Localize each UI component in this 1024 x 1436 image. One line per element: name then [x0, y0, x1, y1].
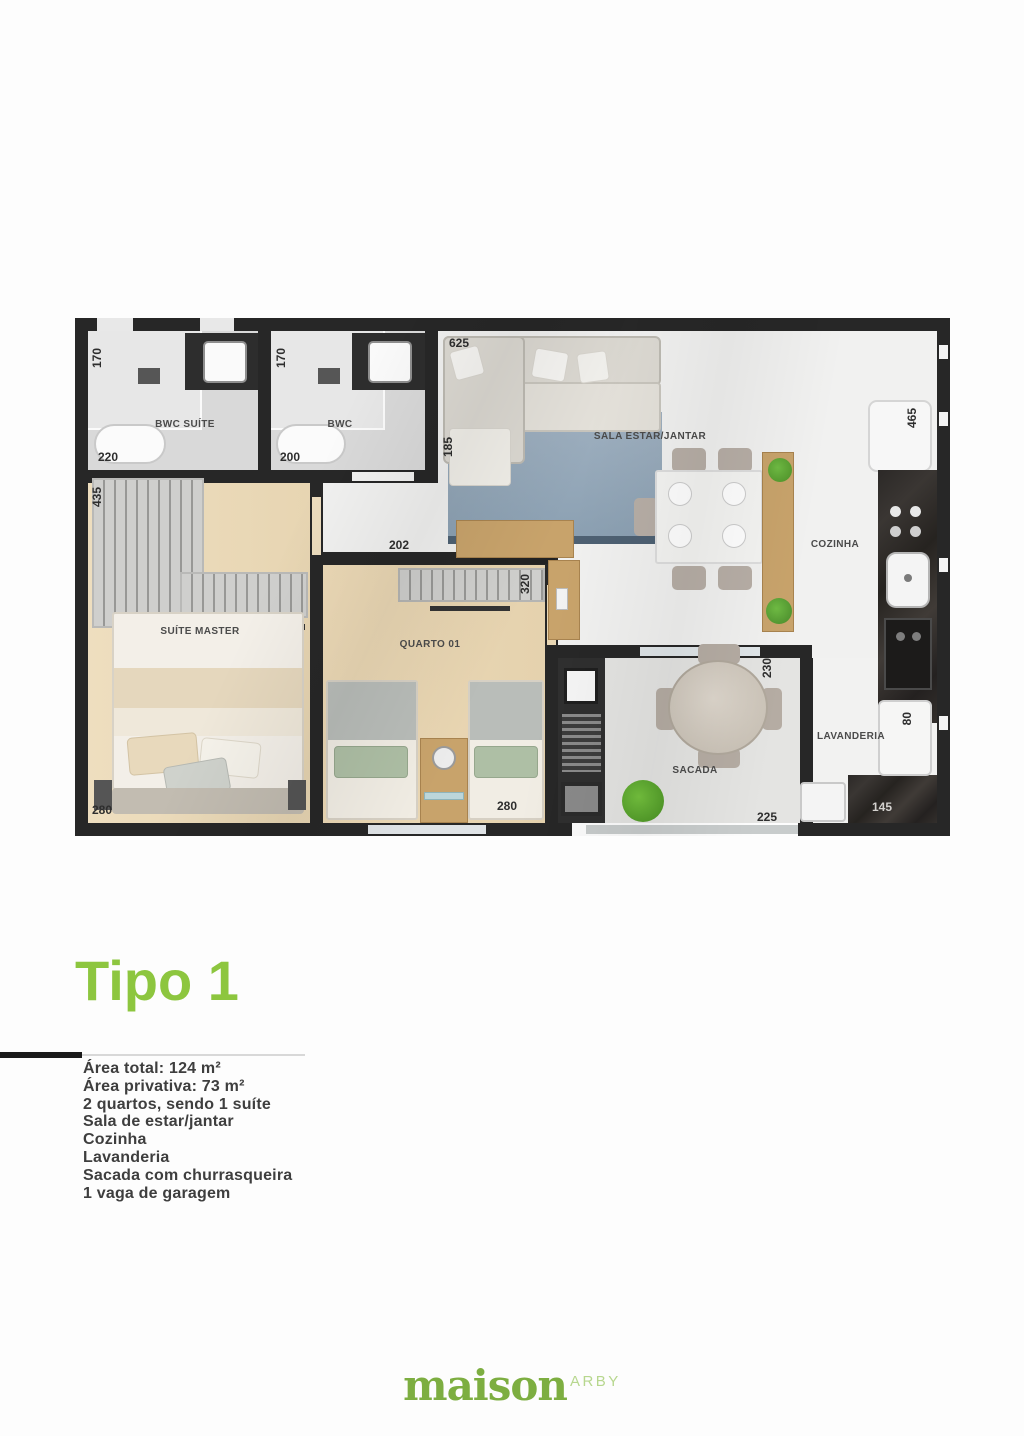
- dining-chair-top-2: [718, 448, 752, 472]
- door-suite: [312, 497, 321, 555]
- label-bwc-suite: BWC SUÍTE: [140, 419, 230, 430]
- detail-quartos: 2 quartos, sendo 1 suíte: [83, 1096, 413, 1114]
- floorplan: BWC SUÍTE BWC SALA ESTAR/JANTAR COZINHA …: [0, 0, 1024, 1436]
- bwc-sink: [368, 341, 412, 383]
- brand-suffix: ARBY: [570, 1373, 621, 1390]
- wall-left: [75, 318, 88, 836]
- quarto-tray: [424, 792, 464, 800]
- dim-bwc-suite-width: 220: [98, 450, 118, 464]
- dim-quarto-width-top: 202: [389, 538, 409, 552]
- dim-suite-width: 280: [92, 803, 112, 817]
- label-suite-master: SUÍTE MASTER: [145, 626, 255, 637]
- burner-3: [890, 526, 901, 537]
- window-quarto-bottom: [368, 825, 486, 834]
- label-bwc: BWC: [310, 419, 370, 430]
- quarto-bed-left-pillow: [334, 746, 408, 778]
- plate-4: [722, 524, 746, 548]
- plate-2: [722, 482, 746, 506]
- dim-lavanderia-height: 80: [900, 712, 914, 725]
- quarto-bed-right-blanket: [470, 682, 542, 740]
- divider-gray: [82, 1054, 305, 1056]
- sofa-pillow-2: [531, 347, 570, 382]
- detail-sala: Sala de estar/jantar: [83, 1113, 413, 1131]
- plant-sideboard-top: [768, 458, 792, 482]
- sofa-pillow-3: [576, 350, 610, 384]
- burner-4: [910, 526, 921, 537]
- label-lavanderia: LAVANDERIA: [808, 731, 894, 742]
- detail-garagem: 1 vaga de garagem: [83, 1185, 413, 1203]
- window-bwc-suite: [97, 318, 133, 331]
- label-cozinha: COZINHA: [800, 539, 870, 550]
- wall-joint-1: [939, 345, 948, 359]
- suite-bed-blanket-1: [114, 668, 302, 708]
- quarto-bed-left-blanket: [328, 682, 416, 740]
- quarto-shelf: [430, 606, 510, 611]
- sacada-railing: [586, 825, 798, 834]
- suite-headboard: [112, 788, 304, 814]
- bwc-faucet-icon: [318, 368, 340, 384]
- wall-bottom-left: [75, 823, 572, 836]
- plant-sideboard-bottom: [766, 598, 792, 624]
- dim-suite-height: 435: [90, 487, 104, 507]
- dining-chair-top-1: [672, 448, 706, 472]
- detail-sacada: Sacada com churrasqueira: [83, 1167, 413, 1185]
- oven-knob-1: [896, 632, 905, 641]
- bwc-suite-sink: [203, 341, 247, 383]
- wall-right: [937, 318, 950, 836]
- churrasqueira-counter: [561, 782, 602, 816]
- detail-area-total: Área total: 124 m²: [83, 1060, 413, 1078]
- plate-1: [668, 482, 692, 506]
- dim-bwc-height: 170: [274, 348, 288, 368]
- label-sacada: SACADA: [655, 765, 735, 776]
- kitchen-faucet-icon: [904, 574, 912, 582]
- bwc-suite-faucet-icon: [138, 368, 160, 384]
- ottoman: [449, 428, 511, 486]
- floorplan-page: BWC SUÍTE BWC SALA ESTAR/JANTAR COZINHA …: [0, 0, 1024, 1436]
- oven: [884, 618, 932, 690]
- dim-sacada-width: 225: [757, 810, 777, 824]
- detail-lavanderia: Lavanderia: [83, 1149, 413, 1167]
- suite-nightstand-right: [288, 780, 306, 810]
- detail-area-privativa: Área privativa: 73 m²: [83, 1078, 413, 1096]
- detail-cozinha: Cozinha: [83, 1131, 413, 1149]
- quarto-lamp: [432, 746, 456, 770]
- oven-knob-2: [912, 632, 921, 641]
- laundry-counter: [848, 775, 937, 823]
- tv-console: [456, 520, 574, 558]
- divider-dark: [0, 1052, 82, 1058]
- tv: [470, 558, 555, 564]
- washing-machine: [800, 782, 846, 822]
- door-bwc: [352, 472, 414, 481]
- sacada-table: [668, 660, 768, 755]
- wall-joint-3: [939, 558, 948, 572]
- wall-bath-divider: [258, 331, 271, 470]
- dim-sacada-height: 230: [760, 658, 774, 678]
- dim-bwc-suite-height: 170: [90, 348, 104, 368]
- dim-sala-height: 185: [441, 437, 455, 457]
- page-title: Tipo 1: [75, 948, 239, 1013]
- quarto-bed-right-pillow: [474, 746, 538, 778]
- dim-lavanderia-width: 145: [872, 800, 892, 814]
- label-sala: SALA ESTAR/JANTAR: [570, 431, 730, 442]
- wall-bottom-right: [798, 823, 950, 836]
- desk-object: [556, 588, 568, 610]
- plate-3: [668, 524, 692, 548]
- dining-chair-bottom-1: [672, 566, 706, 590]
- dim-bwc-width: 200: [280, 450, 300, 464]
- label-quarto01: QUARTO 01: [390, 639, 470, 650]
- brand-logo: maison: [403, 1364, 567, 1408]
- wall-bath-right: [425, 331, 438, 470]
- burner-1: [890, 506, 901, 517]
- suite-bed-blanket-2: [114, 708, 302, 736]
- dim-sala-width: 625: [449, 336, 469, 350]
- footer: maison ARBY: [0, 1364, 1024, 1408]
- dim-cozinha-height: 465: [905, 408, 919, 428]
- sacada-plant: [622, 780, 664, 822]
- details-list: Área total: 124 m² Área privativa: 73 m²…: [83, 1060, 413, 1202]
- wall-joint-2: [939, 412, 948, 426]
- burner-2: [910, 506, 921, 517]
- dim-quarto-width: 280: [497, 799, 517, 813]
- window-bwc: [200, 318, 234, 331]
- wall-joint-4: [939, 716, 948, 730]
- fridge: [868, 400, 932, 472]
- churrasqueira-grill: [562, 714, 601, 772]
- dim-quarto-height: 320: [518, 574, 532, 594]
- churrasqueira-box: [564, 668, 598, 704]
- dining-chair-bottom-2: [718, 566, 752, 590]
